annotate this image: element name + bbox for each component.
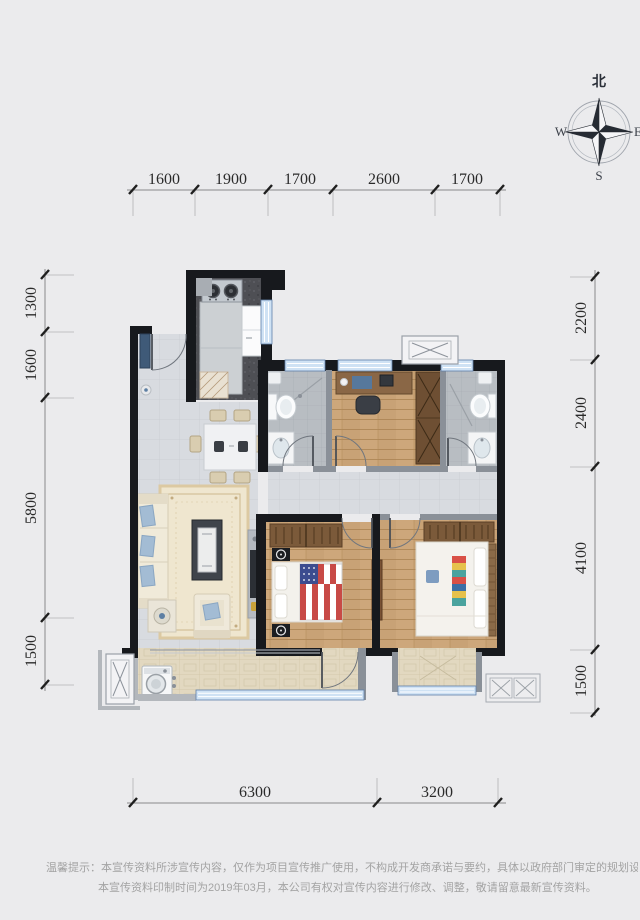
blue-cushion [426, 570, 439, 583]
wardrobe [424, 522, 494, 542]
pillow [474, 548, 486, 586]
sofa-pillow [140, 535, 155, 556]
desk-chair [356, 396, 380, 414]
bed [416, 542, 488, 636]
dim-top-4: 2600 [368, 171, 400, 188]
toilet [268, 394, 296, 420]
hallway-floor [268, 472, 497, 514]
ac-platform-bottom-right [486, 674, 540, 702]
armchair [194, 594, 230, 638]
dim-bottom-1: 6300 [239, 784, 271, 801]
dim-left-2: 1600 [23, 349, 40, 381]
pillow [275, 566, 287, 590]
dim-left-4: 1500 [23, 635, 40, 667]
pillow [275, 594, 287, 618]
wardrobe [270, 524, 342, 547]
bathroom1-window [285, 360, 325, 371]
living-room-furniture [138, 486, 262, 638]
sofa-pillow [140, 565, 155, 586]
dim-left-1: 1300 [23, 287, 40, 319]
compass-west-label: W [555, 124, 568, 139]
disclaimer-line-1: 温馨提示：本宣传资料所涉宣传内容，仅作为项目宣传推广使用，不构成开发商承诺与要约… [46, 858, 638, 878]
top-dimension-ruler: 1600 1900 1700 2600 1700 [0, 158, 640, 220]
disclaimer-line-2: 本宣传资料印制时间为2019年03月，本公司有权对宣传内容进行修改、调整，敬请留… [46, 878, 638, 898]
dim-top-3: 1700 [284, 171, 316, 188]
compass-east-label: E [634, 124, 640, 139]
dim-top-1: 1600 [148, 171, 180, 188]
floor-plan-page: 北 W E S 1600 1900 1700 2600 1700 1300 16… [0, 0, 640, 920]
right-dimension-ruler: 2200 2400 4100 1500 [566, 250, 626, 722]
dim-right-4: 1500 [573, 665, 590, 697]
master-bay-window [398, 686, 476, 695]
ac-platform-top-right [402, 336, 458, 364]
sofa [138, 494, 168, 608]
pillow [474, 590, 486, 628]
dining-table [204, 424, 256, 470]
sink [468, 432, 496, 464]
sink [268, 432, 294, 464]
compass-north-label: 北 [592, 73, 606, 89]
dining-chair [234, 410, 250, 421]
door-mat [200, 372, 228, 398]
dim-right-2: 2400 [573, 397, 590, 429]
toilet [470, 394, 496, 418]
shoe-cabinet [140, 334, 150, 368]
dining-chair [210, 410, 226, 421]
side-table-lamp [148, 600, 176, 632]
ac-platform-bottom-left [100, 650, 140, 708]
coffee-table [192, 520, 222, 580]
study-window [338, 360, 392, 371]
floor-plan [95, 248, 550, 718]
dining-chair [234, 472, 250, 483]
dining-chair [190, 436, 201, 452]
dim-left-3: 5800 [23, 492, 40, 524]
dim-right-1: 2200 [573, 302, 590, 334]
dim-top-2: 1900 [215, 171, 247, 188]
dim-right-3: 4100 [573, 542, 590, 574]
hall-wardrobe [416, 372, 444, 464]
compass-star-cardinal [565, 98, 633, 166]
kitchen-window [261, 300, 272, 344]
flag-blanket [300, 564, 342, 620]
bedroom2-furniture [270, 524, 342, 637]
striped-throw [452, 556, 466, 606]
bottom-dimension-ruler: 6300 3200 [0, 770, 640, 826]
tv [250, 550, 257, 598]
dining-chair [210, 472, 226, 483]
left-dimension-ruler: 1300 1600 5800 1500 [18, 250, 76, 705]
bed [272, 562, 342, 622]
sofa-pillow [140, 505, 156, 527]
balcony-window [196, 690, 364, 700]
dim-top-5: 1700 [451, 171, 483, 188]
refrigerator [242, 306, 262, 356]
laptop [380, 375, 393, 386]
disclaimer: 温馨提示：本宣传资料所涉宣传内容，仅作为项目宣传推广使用，不构成开发商承诺与要约… [46, 858, 638, 898]
kitchen-flue [196, 278, 212, 296]
dim-bottom-2: 3200 [421, 784, 453, 801]
